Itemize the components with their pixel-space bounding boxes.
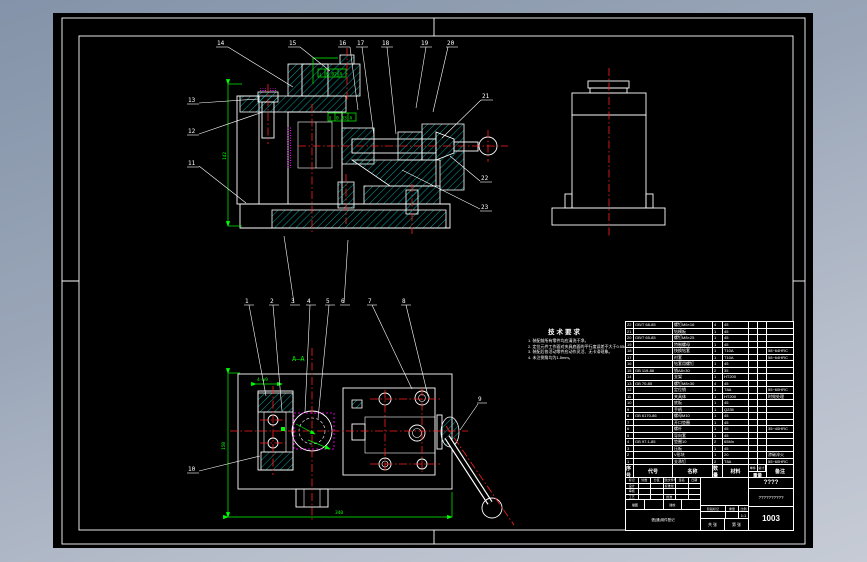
parts-list: 22GB/T 68-85螺钉M6×1644521钻模板14520GB/T 65-…: [625, 321, 794, 479]
plan-centerlines: [230, 348, 514, 525]
title-block-middle: 阶段标记 重量 比例 1:1 共 张 第 张: [701, 477, 749, 530]
bom-cell: 2: [713, 458, 723, 465]
bom-cell: 支承钉: [673, 458, 713, 465]
bom-cell: [749, 458, 758, 465]
plan-dimensions: 150 340 4-φ9 A—A: [221, 355, 452, 517]
cad-canvas[interactable]: 142 ⊥ 0.02 A ∥ 0.03 A 14 15 16 17 18 19 …: [53, 13, 813, 548]
title-block-right: ???? ?????????? 1003: [749, 477, 794, 530]
side-view: [552, 68, 665, 238]
balloon-19: 19: [421, 40, 429, 47]
tb-part-name: ????: [749, 477, 794, 488]
balloon-18: 18: [382, 40, 390, 47]
balloon-23: 23: [481, 204, 489, 211]
bom-cell: 55~60HRC: [767, 458, 794, 465]
dim-plan-height: 150: [221, 442, 227, 450]
tb-sheets: 共 张: [701, 518, 725, 530]
header-total-weight: 总计: [758, 465, 767, 471]
balloon-11: 11: [188, 160, 196, 167]
tb-scale-value: 1:1: [739, 511, 749, 518]
title-block-left: 标记 处数 分区 更改文件号 签名 日期 设计 标准化 审核 工艺: [626, 477, 701, 530]
balloon-16: 16: [339, 40, 347, 47]
gdt2-datum: A: [350, 116, 353, 122]
dim-section-height: 142: [222, 152, 228, 160]
plan-view: 150 340 4-φ9 A—A 1 2 3 4 5 6 7 8 9 10: [187, 236, 514, 525]
bom-cell: [758, 458, 767, 465]
tb-name-area: [701, 477, 749, 505]
table-row: 1支承钉2T8A55~60HRC: [626, 458, 794, 465]
section-view: 142 ⊥ 0.02 A ∥ 0.03 A 14 15 16 17 18 19 …: [187, 40, 508, 234]
balloon-15: 15: [289, 40, 297, 47]
section-label: A—A: [292, 355, 305, 363]
balloon-12: 12: [188, 128, 196, 135]
tb-cell: [682, 499, 701, 509]
tb-cell: 描图: [626, 499, 645, 509]
tb-cell: [701, 511, 726, 518]
balloon-21: 21: [482, 93, 490, 100]
balloon-9: 9: [478, 396, 482, 403]
balloon-22: 22: [481, 175, 489, 182]
header-unit-weight: 单件: [749, 465, 758, 471]
gdt1-datum: A: [340, 72, 343, 78]
balloon-17: 17: [357, 40, 365, 47]
balloon-8: 8: [402, 298, 406, 305]
balloon-20: 20: [447, 40, 455, 47]
parts-table-body: 22GB/T 68-85螺钉M6×1644521钻模板14520GB/T 65-…: [626, 321, 794, 464]
tb-cell: [726, 511, 739, 518]
tb-registration-note: 借(通)用件登记: [626, 509, 701, 530]
bom-cell: [634, 458, 673, 465]
dim-plan-width: 340: [335, 510, 343, 516]
tb-cell: 描校: [664, 499, 683, 509]
tb-drawing-number: 1003: [749, 506, 794, 530]
balloon-7: 7: [368, 298, 372, 305]
balloon-14: 14: [217, 40, 225, 47]
bom-cell: T8A: [723, 458, 749, 465]
balloon-5: 5: [326, 298, 330, 305]
balloon-4: 4: [307, 298, 311, 305]
balloon-1: 1: [245, 298, 249, 305]
gdt1-tolerance: 0.02: [326, 72, 337, 78]
gdt2-symbol: ∥: [329, 116, 331, 122]
balloon-3: 3: [291, 298, 295, 305]
balloon-10: 10: [188, 466, 196, 473]
tb-sheet-no: 第 张: [725, 518, 749, 530]
tb-cell: [645, 499, 664, 509]
bom-cell: 1: [626, 458, 634, 465]
balloon-13: 13: [188, 97, 196, 104]
gdt1-symbol: ⊥: [319, 73, 322, 78]
balloon-2: 2: [270, 298, 274, 305]
gdt2-tolerance: 0.03: [336, 116, 347, 122]
tb-company-name: ??????????: [749, 488, 794, 506]
title-block: 标记 处数 分区 更改文件号 签名 日期 设计 标准化 审核 工艺: [625, 477, 794, 531]
